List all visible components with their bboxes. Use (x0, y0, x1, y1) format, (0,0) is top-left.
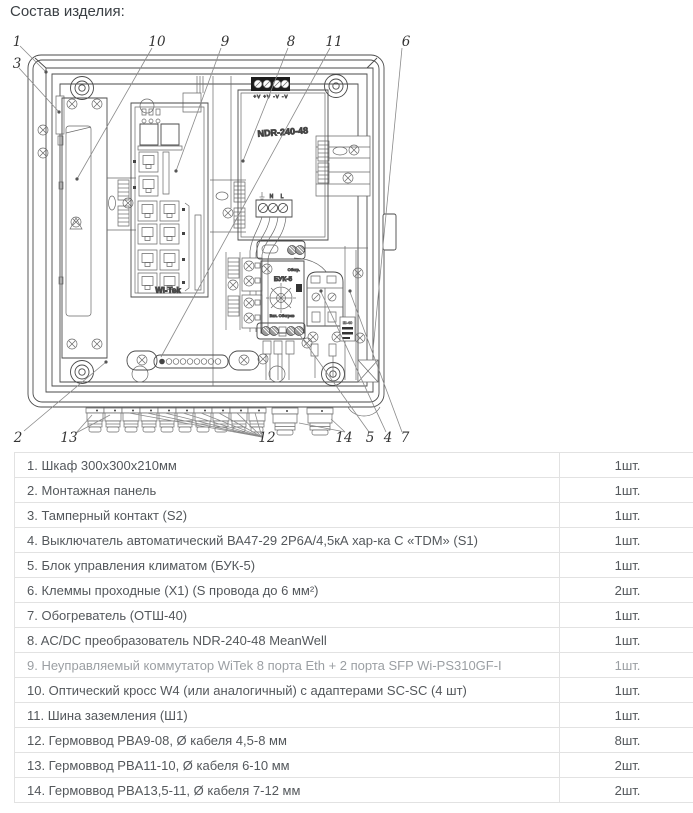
table-row: 12. Гермоввод PBA9-08, Ø кабеля 4,5-8 мм… (15, 728, 693, 753)
led-indicator (142, 119, 146, 123)
ethernet-switch: Wi-Tek (131, 103, 208, 297)
quantity-cell: 8шт. (560, 728, 693, 753)
console-port (163, 152, 169, 194)
ground-bus (127, 351, 268, 370)
quantity-cell: 1шт. (560, 553, 693, 578)
quantity-cell: 2шт. (560, 753, 693, 778)
terminal-blocks-x1 (242, 258, 262, 328)
mounting-panel (38, 75, 365, 386)
din-rail-left (107, 178, 136, 230)
rim-screw (38, 148, 48, 158)
climate-top-text: Обогр. (288, 267, 300, 272)
quantity-cell: 1шт. (560, 703, 693, 728)
climate-model-label: БУК-5 (274, 276, 293, 283)
quantity-cell: 1шт. (560, 478, 693, 503)
psu-input-terminal (256, 200, 292, 217)
callout-8: 8 (287, 34, 296, 50)
components-table: 1. Шкаф 300х300х210мм 1шт. 2. Монтажная … (14, 452, 693, 803)
callout-7: 7 (401, 430, 410, 446)
quantity-cell: 1шт. (560, 528, 693, 553)
psu-input-markings: N L (270, 194, 287, 200)
rj45-port (139, 176, 158, 196)
rj45-port (160, 201, 179, 221)
din-rail-center (210, 180, 246, 232)
rim-screw (38, 125, 48, 135)
cabinet-outline (28, 55, 396, 416)
table-row: 13. Гермоввод PBA11-10, Ø кабеля 6-10 мм… (15, 753, 693, 778)
table-row: 6. Клеммы проходные (Х1) (S провода до 6… (15, 578, 693, 603)
sfp-port (140, 124, 158, 145)
climate-bottom-text: Вкл. Обогрев (270, 313, 295, 318)
table-row: 1. Шкаф 300х300х210мм 1шт. (15, 453, 693, 478)
panel-screw (355, 333, 365, 343)
table-row: 3. Тамперный контакт (S2) 1шт. (15, 503, 693, 528)
din-rail-right (316, 136, 370, 196)
rotary-dial (266, 283, 296, 313)
table-row: 10. Оптический кросс W4 (или аналогичный… (15, 678, 693, 703)
callout-leaders (19, 46, 402, 437)
component-name-cell: 11. Шина заземления (Ш1) (15, 703, 560, 728)
rj45-port (138, 224, 157, 244)
panel-hole (132, 366, 148, 382)
product-composition-diagram: Wi-Tek NDR-240-48 +V +V -V -V N L (0, 0, 430, 452)
rj45-port (138, 201, 157, 221)
corner-bolt (71, 77, 94, 100)
cabinet-drawing: Wi-Tek NDR-240-48 +V +V -V -V N L (0, 0, 430, 452)
component-name-cell: 10. Оптический кросс W4 (или аналогичный… (15, 678, 560, 703)
sfp-port (161, 124, 179, 145)
callout-6: 6 (402, 34, 411, 50)
callout-14: 14 (335, 430, 352, 446)
table-row: 5. Блок управления климатом (БУК-5) 1шт. (15, 553, 693, 578)
callout-12: 12 (258, 430, 275, 446)
rj45-port (138, 250, 157, 270)
callout-3: 3 (13, 56, 22, 72)
component-name-cell: 13. Гермоввод PBA11-10, Ø кабеля 6-10 мм (15, 753, 560, 778)
quantity-cell: 1шт. (560, 503, 693, 528)
ground-symbol-icon (260, 192, 265, 199)
table-row: 7. Обогреватель (ОТШ-40) 1шт. (15, 603, 693, 628)
callout-2: 2 (13, 430, 23, 446)
rj45-port (139, 152, 158, 172)
table-row: 8. AC/DC преобразователь NDR-240-48 Mean… (15, 628, 693, 653)
rj45-port (138, 273, 157, 293)
component-name-cell: 2. Монтажная панель (15, 478, 560, 503)
table-row: 2. Монтажная панель 1шт. (15, 478, 693, 503)
table-row: 9. Неуправляемый коммутатор WiTek 8 порт… (15, 653, 693, 678)
component-name-cell: 3. Тамперный контакт (S2) (15, 503, 560, 528)
cable-glands (86, 408, 333, 435)
callout-13: 13 (60, 430, 77, 446)
quantity-cell: 1шт. (560, 603, 693, 628)
component-name-cell: 5. Блок управления климатом (БУК-5) (15, 553, 560, 578)
component-name-cell: 4. Выключатель автоматический ВА47-29 2Р… (15, 528, 560, 553)
quantity-cell: 1шт. (560, 653, 693, 678)
psu-terminal-markings: +V +V -V -V (253, 94, 288, 99)
led-indicator (149, 119, 153, 123)
table-row: 14. Гермоввод PBA13,5-11, Ø кабеля 7-12 … (15, 778, 693, 803)
callout-9: 9 (221, 34, 230, 50)
callout-5: 5 (366, 430, 375, 446)
component-name-cell: 14. Гермоввод PBA13,5-11, Ø кабеля 7-12 … (15, 778, 560, 803)
panel-hole (269, 366, 285, 382)
rj45-port (160, 250, 179, 270)
quantity-cell: 1шт. (560, 678, 693, 703)
table-row: 11. Шина заземления (Ш1) 1шт. (15, 703, 693, 728)
component-name-cell: 6. Клеммы проходные (Х1) (S провода до 6… (15, 578, 560, 603)
callout-numbers: 1 3 10 9 8 11 6 2 13 12 14 5 4 7 (13, 34, 411, 446)
table-row: 4. Выключатель автоматический ВА47-29 2Р… (15, 528, 693, 553)
callout-11: 11 (325, 34, 342, 50)
heater-label: Ш-40 (343, 320, 353, 325)
component-name-cell: 9. Неуправляемый коммутатор WiTek 8 порт… (15, 653, 560, 678)
quantity-cell: 2шт. (560, 578, 693, 603)
psu-model-label: NDR-240-48 (257, 125, 308, 139)
rj45-port (160, 224, 179, 244)
climate-control-buk5: Обогр. БУК-5 Вкл. Обогрев (257, 241, 305, 380)
callout-10: 10 (148, 34, 166, 50)
component-name-cell: 8. AC/DC преобразователь NDR-240-48 Mean… (15, 628, 560, 653)
switch-brand-label: Wi-Tek (155, 286, 181, 295)
quantity-cell: 1шт. (560, 453, 693, 478)
callout-4: 4 (383, 430, 393, 446)
breaker-wires (311, 344, 336, 378)
corner-bolt (71, 361, 94, 384)
component-name-cell: 12. Гермоввод PBA9-08, Ø кабеля 4,5-8 мм (15, 728, 560, 753)
quantity-cell: 2шт. (560, 778, 693, 803)
led-indicator (156, 119, 160, 123)
optical-cross (62, 98, 107, 358)
quantity-cell: 1шт. (560, 628, 693, 653)
din-rail-lower (226, 252, 240, 330)
component-name-cell: 7. Обогреватель (ОТШ-40) (15, 603, 560, 628)
circuit-breaker (307, 272, 343, 378)
component-name-cell: 1. Шкаф 300х300х210мм (15, 453, 560, 478)
callout-1: 1 (13, 34, 22, 50)
door-latch (383, 214, 396, 250)
